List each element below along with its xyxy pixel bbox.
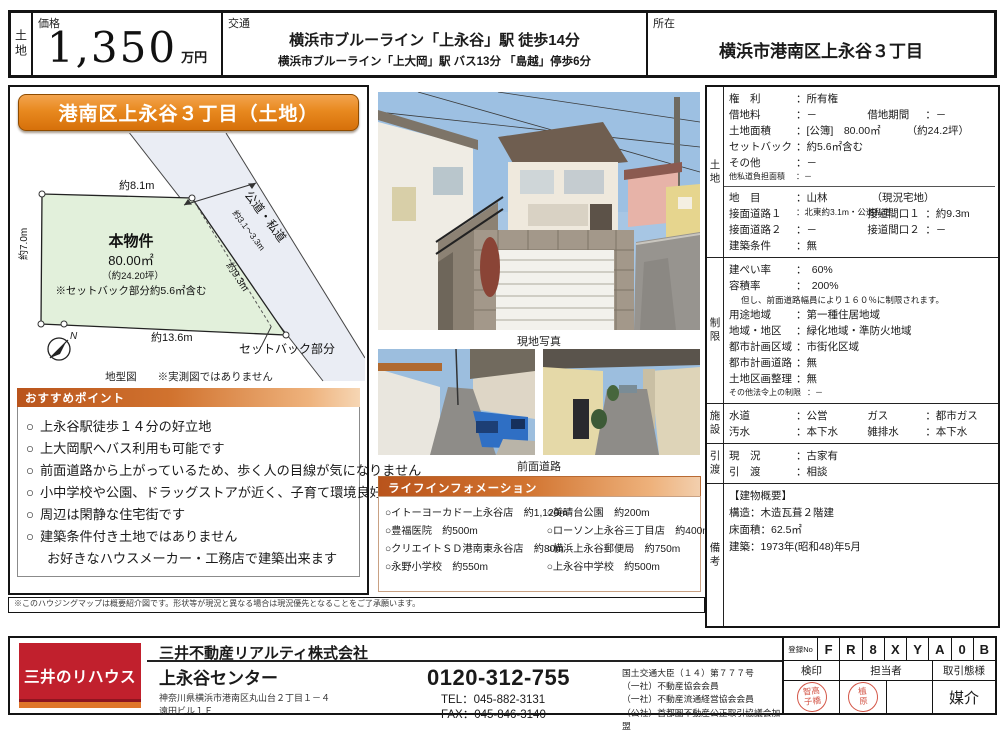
life-item: ○永野小学校 約550m <box>385 559 547 577</box>
fax-number: FAX：045-846-3140 <box>441 708 622 723</box>
point-item: ○上大岡駅へバス利用も可能です <box>26 438 353 460</box>
front-road-photo-left <box>378 349 535 455</box>
map-disclaimer: ※このハウジングマップは概要紹介図です。形状等が現況と異なる場合は現況優先となる… <box>8 597 705 613</box>
registration-no-label: 登録No <box>784 638 817 660</box>
section-handover: 引渡 現 況：古家有 引 渡：相談 <box>707 443 998 483</box>
life-information: ライフインフォメーション ○イトーヨーカドー上永谷店 約1,120m ○美晴台公… <box>378 476 701 592</box>
access-line2: 横浜市ブルーライン「上大岡」駅 バス13分 「島越」停歩6分 <box>278 53 591 69</box>
office-address-2: 遠田ビル１Ｆ <box>159 705 427 718</box>
front-road-photo-right <box>543 349 700 455</box>
dim-bottom: 約13.6m <box>151 330 193 344</box>
section-remarks-tab: 備考 <box>708 542 723 569</box>
life-information-header: ライフインフォメーション <box>378 476 701 496</box>
plot-diagram: N 約8.1m 約7.0m 約13.6m 約9.3m 公道・私道 約3.1～3.… <box>13 133 365 386</box>
point-item: ○上永谷駅徒歩１４分の好立地 <box>26 416 353 438</box>
parcel-tsubo: （約24.20坪） <box>102 270 164 282</box>
header-category-tab: 土地 <box>11 13 33 75</box>
diagram-caption: 地型図 ※実測図ではありません <box>105 370 273 383</box>
freecall-number: 0120-312-755 <box>427 665 622 691</box>
svg-text:N: N <box>70 331 78 342</box>
life-item: ○ローソン上永谷三丁目店 約400m <box>547 523 696 541</box>
price-label: 価格 <box>38 15 60 31</box>
staff-stamp-empty <box>887 681 933 713</box>
section-remarks: 備考 【建物概要】 構造：木造瓦葺２階建 床面積：62.5㎡ 建築：1973年(… <box>707 483 998 626</box>
points-list: ○上永谷駅徒歩１４分の好立地 ○上大岡駅へバス利用も可能です ○前面道路から上が… <box>17 407 360 577</box>
location-label: 所在 <box>653 15 675 31</box>
point-item: ○小中学校や公園、ドラッグストアが近く、子育て環境良好です <box>26 482 353 504</box>
transaction-type-value: 媒介 <box>933 681 995 713</box>
life-item: ○横浜上永谷郵便局 約750m <box>547 541 696 559</box>
point-item: ○建築条件付き土地ではありません <box>26 526 353 548</box>
parcel-title: 本物件 <box>108 232 153 250</box>
office-name: 上永谷センター <box>159 664 427 689</box>
location-value: 横浜市港南区上永谷３丁目 <box>719 37 923 62</box>
col-seal: 検印 <box>784 661 840 680</box>
setback-label: セットバック部分 <box>239 341 335 356</box>
access-cell: 交通 横浜市ブルーライン「上永谷」駅 徒歩14分 横浜市ブルーライン「上大岡」駅… <box>223 13 648 75</box>
life-item: ○イトーヨーカドー上永谷店 約1,120m <box>385 505 547 523</box>
office-address-1: 神奈川県横浜市港南区丸山台２丁目１－４ <box>159 692 427 705</box>
footer: 三井のリハウス 三井不動産リアルティ株式会社 上永谷センター 神奈川県横浜市港南… <box>8 636 997 715</box>
point-item: ○周辺は閑静な住宅街です <box>26 504 353 526</box>
company-logo: 三井のリハウス <box>19 643 141 708</box>
life-item: ○美晴台公園 約200m <box>547 505 696 523</box>
price-cell: 価格 1,350 万円 <box>33 13 223 75</box>
company-name: 三井不動産リアルティ株式会社 <box>147 638 782 662</box>
life-item: ○上永谷中学校 約500m <box>547 559 696 577</box>
approval-stamp: 智高子橋 <box>795 681 828 714</box>
location-cell: 所在 横浜市港南区上永谷３丁目 <box>648 13 994 75</box>
restriction-note: 但し、前面道路幅員により１６０％に制限されます。 <box>729 294 995 307</box>
parcel-area: 80.00㎡ <box>108 253 154 268</box>
license-block: 国土交通大臣（１４）第７７７号 （一社）不動産協会会員 （一社）不動産流通経営協… <box>622 662 782 733</box>
section-facilities-tab: 施設 <box>708 410 723 437</box>
point-sub-item: お好きなハウスメーカー・工務店で建築出来ます <box>26 548 353 570</box>
front-road-caption: 前面道路 <box>378 458 700 474</box>
access-label: 交通 <box>228 15 250 31</box>
dim-left: 約7.0m <box>17 228 30 260</box>
life-item: ○豊福医院 約500m <box>385 523 547 541</box>
life-item: ○クリエイトＳＤ港南東永谷店 約80m <box>385 541 547 559</box>
compass-icon: N <box>48 331 78 360</box>
tel-number: TEL：045-882-3131 <box>441 693 622 708</box>
access-line1: 横浜市ブルーライン「上永谷」駅 徒歩14分 <box>289 29 580 50</box>
col-staff: 担当者 <box>840 661 933 680</box>
section-land-tab: 土地 <box>708 159 723 186</box>
staff-stamp: 植原 <box>847 681 880 714</box>
point-item: ○前面道路から上がっているため、歩く人の目線が気になりません <box>26 460 353 482</box>
section-facilities: 施設 水道：公営 ガス：都市ガス 汚水：本下水 雑排水：本下水 <box>707 403 998 443</box>
parcel-note: ※セットバック部分約5.6㎡含む <box>55 284 206 297</box>
dim-top: 約8.1m <box>119 178 154 192</box>
col-transaction-type: 取引態様 <box>933 661 995 680</box>
points-header: おすすめポイント <box>17 388 360 407</box>
section-restrictions: 制限 建ぺい率： 60% 容積率： 200% 但し、前面道路幅員により１６０％に… <box>707 257 998 403</box>
site-photo <box>378 92 700 330</box>
property-panel: 港南区上永谷３丁目（土地） N 約8.1m 約7.0m 約13.6m 約9.3m… <box>8 85 369 595</box>
section-land: 土地 権 利：所有権 借地料：－ 借地期間：－ 土地面積：[公簿] 80.00㎡… <box>707 87 998 257</box>
site-photo-caption: 現地写真 <box>378 333 700 349</box>
price-unit: 万円 <box>181 47 207 66</box>
property-title: 港南区上永谷３丁目（土地） <box>18 94 359 131</box>
price-value: 1,350 <box>47 27 177 69</box>
header-strip: 土地 価格 1,350 万円 交通 横浜市ブルーライン「上永谷」駅 徒歩14分 … <box>8 10 997 78</box>
section-handover-tab: 引渡 <box>708 450 723 477</box>
registration-table: 登録No F R 8 X Y A 0 B 検印 担当者 取引態様 智高子橋 植原 <box>782 638 995 713</box>
details-panel: 土地 権 利：所有権 借地料：－ 借地期間：－ 土地面積：[公簿] 80.00㎡… <box>705 85 1000 628</box>
life-information-list: ○イトーヨーカドー上永谷店 約1,120m ○美晴台公園 約200m ○豊福医院… <box>378 496 701 592</box>
section-restrictions-tab: 制限 <box>708 317 723 344</box>
